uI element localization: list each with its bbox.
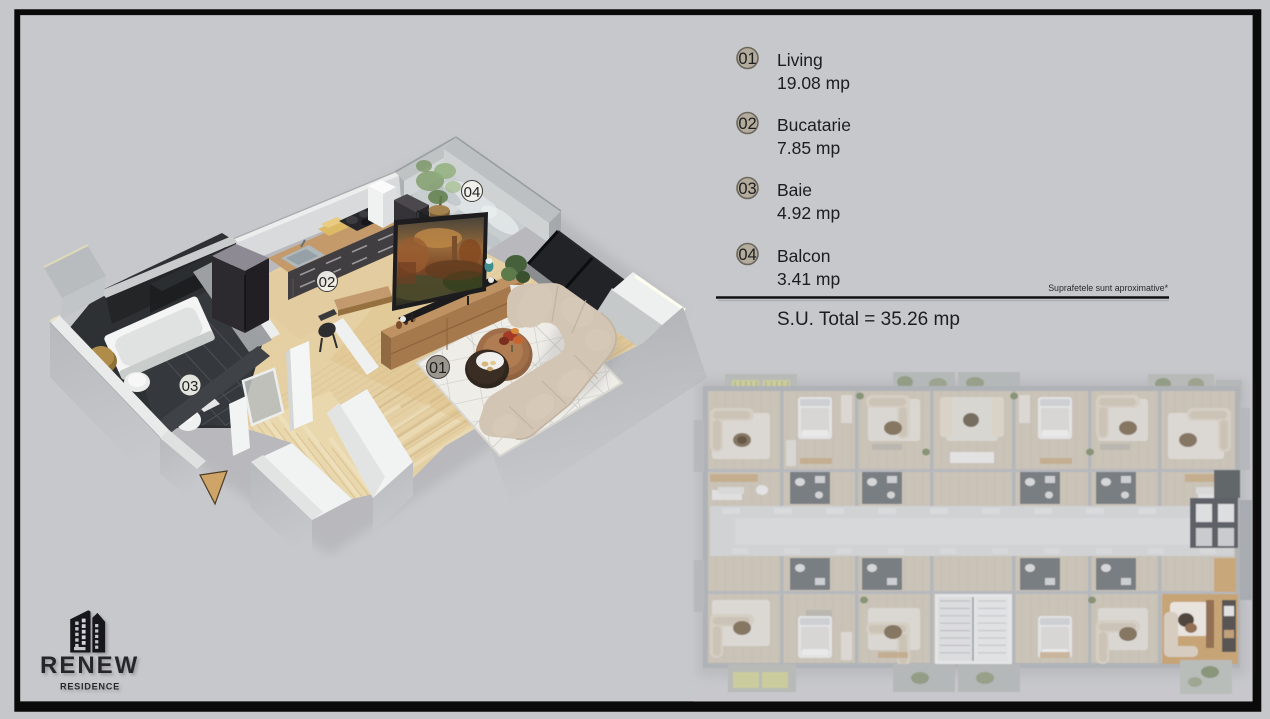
svg-text:19.08 mp: 19.08 mp [777,73,850,93]
svg-text:3.41 mp: 3.41 mp [777,269,840,289]
svg-text:7.85 mp: 7.85 mp [777,138,840,158]
svg-text:Baie: Baie [777,180,812,200]
svg-text:02: 02 [319,274,336,291]
svg-text:01: 01 [738,50,756,68]
svg-text:Suprafetele sunt aproximative*: Suprafetele sunt aproximative* [1048,283,1168,293]
svg-text:03: 03 [738,180,756,198]
svg-text:04: 04 [464,184,481,201]
svg-text:03: 03 [182,378,199,395]
svg-text:4.92 mp: 4.92 mp [777,203,840,223]
svg-text:S.U. Total = 35.26 mp: S.U. Total = 35.26 mp [777,309,960,330]
svg-text:Bucatarie: Bucatarie [777,115,851,135]
svg-text:RENEW: RENEW [40,652,139,679]
svg-text:02: 02 [738,115,756,133]
svg-text:Living: Living [777,50,823,70]
svg-text:Balcon: Balcon [777,246,831,266]
svg-text:04: 04 [738,246,756,264]
svg-text:01: 01 [429,360,447,377]
svg-text:RESIDENCE: RESIDENCE [60,682,120,692]
